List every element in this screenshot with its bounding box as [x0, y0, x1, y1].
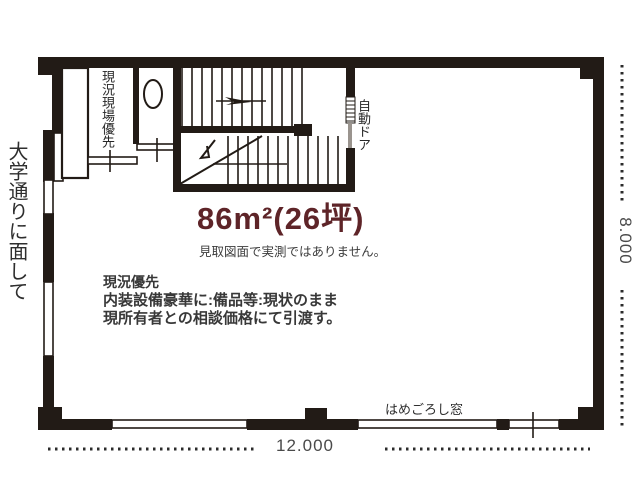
- floor-plan-drawing: [0, 0, 640, 480]
- note-line-1: 内装設備豪華に:備品等:現状のまま: [103, 292, 338, 309]
- closet-shaft: [62, 68, 88, 178]
- disclaimer-text: 見取図面で実測ではありません。: [199, 245, 386, 259]
- window-bottom-left: [112, 420, 247, 428]
- stair-wall-left: [173, 68, 181, 192]
- wall-bottom-seg4: [559, 419, 602, 430]
- stair-direction-diagonal: [180, 136, 262, 184]
- stair-arrow-start-hook: [201, 140, 215, 158]
- window-left-lower: [44, 282, 53, 356]
- room-priority-label: 現況現場優先: [99, 70, 114, 148]
- stairwell: [173, 57, 355, 192]
- stair-divider-wall: [181, 126, 310, 133]
- street-label: 大学通りに面して: [4, 141, 27, 301]
- note-line-2: 現所有者との相談価格にて引渡す。: [103, 310, 341, 327]
- area-title: 86m²(26坪): [197, 201, 365, 237]
- auto-door: [346, 97, 355, 148]
- toilet-fixture-ellipse: [144, 80, 162, 108]
- stair-divider-end-block: [294, 124, 312, 136]
- dimension-width-value: 12.000: [276, 436, 334, 456]
- stair-wall-right-upper: [346, 57, 355, 97]
- stair-wall-bottom: [173, 184, 355, 192]
- window-bottom-right: [509, 420, 559, 428]
- auto-door-label: 自動ドア: [355, 99, 370, 151]
- note-title: 現況優先: [103, 274, 159, 290]
- stairs-upper-treads: [182, 68, 302, 126]
- wall-right: [593, 57, 604, 430]
- wall-bottom-seg2: [247, 419, 358, 430]
- stairs-lower-treads: [228, 136, 338, 184]
- wall-bottom-seg3: [497, 419, 509, 430]
- wall-left-jog: [43, 130, 54, 182]
- wall-left-mid: [43, 213, 54, 282]
- wall-top: [38, 57, 602, 68]
- stair-wall-right-lower: [346, 148, 355, 192]
- window-bottom-center: [358, 420, 497, 428]
- partition-wall-vertical: [133, 68, 139, 144]
- wall-right-top-step: [580, 68, 594, 79]
- wall-bottom-pillar: [305, 408, 327, 420]
- floor-plan: 大学通りに面して 現況現場優先 自動ドア 86m²(26坪) 見取図面で実測では…: [0, 0, 640, 480]
- wall-left-lower: [43, 356, 54, 430]
- partition-door-upper: [137, 144, 175, 150]
- auto-door-panel: [348, 123, 352, 148]
- dimension-height-value: 8.000: [617, 213, 635, 269]
- fixed-window-label: はめごろし窓: [385, 403, 463, 418]
- window-left-upper: [44, 180, 53, 214]
- partition-door-lower: [88, 157, 137, 164]
- outer-walls: [38, 57, 604, 430]
